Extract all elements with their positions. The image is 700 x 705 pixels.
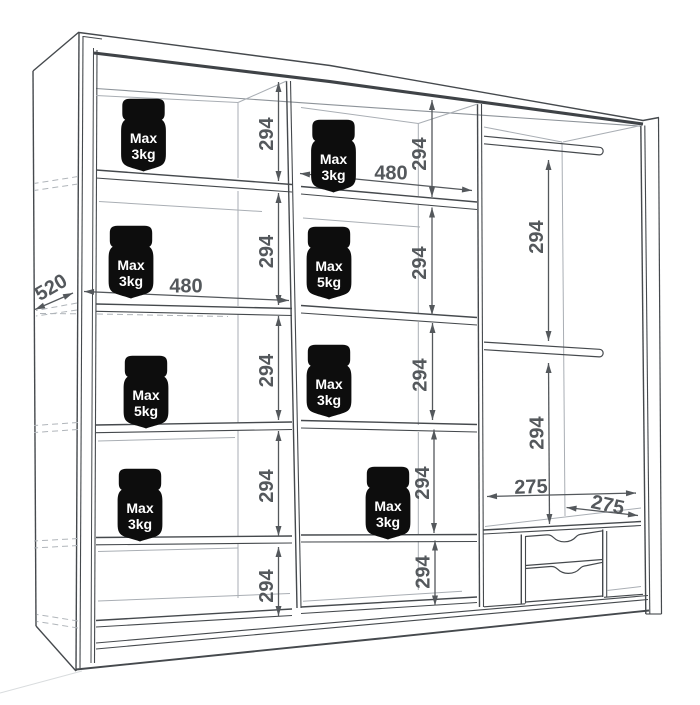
svg-text:3kg: 3kg xyxy=(119,273,143,289)
svg-text:480: 480 xyxy=(169,275,202,297)
svg-text:3kg: 3kg xyxy=(131,146,155,162)
svg-text:Max: Max xyxy=(130,130,157,146)
svg-text:294: 294 xyxy=(526,415,548,449)
svg-text:294: 294 xyxy=(256,234,278,268)
svg-text:294: 294 xyxy=(409,136,431,170)
svg-text:5kg: 5kg xyxy=(134,403,158,419)
svg-text:294: 294 xyxy=(409,357,431,391)
svg-text:294: 294 xyxy=(412,465,434,499)
svg-text:Max: Max xyxy=(126,500,153,516)
svg-text:294: 294 xyxy=(409,245,431,279)
svg-text:275: 275 xyxy=(514,476,548,499)
svg-text:Max: Max xyxy=(315,258,342,274)
svg-text:294: 294 xyxy=(412,554,434,588)
svg-text:3kg: 3kg xyxy=(128,516,152,532)
svg-text:294: 294 xyxy=(256,468,278,502)
svg-text:Max: Max xyxy=(132,387,159,403)
svg-text:480: 480 xyxy=(374,162,407,184)
svg-text:Max: Max xyxy=(315,376,342,392)
svg-text:294: 294 xyxy=(526,219,548,253)
svg-text:3kg: 3kg xyxy=(321,167,345,183)
svg-text:294: 294 xyxy=(256,568,278,602)
svg-text:Max: Max xyxy=(320,151,347,167)
svg-text:3kg: 3kg xyxy=(317,392,341,408)
svg-text:294: 294 xyxy=(256,353,278,387)
svg-text:Max: Max xyxy=(117,257,144,273)
svg-text:3kg: 3kg xyxy=(376,514,400,530)
svg-text:Max: Max xyxy=(374,498,401,514)
svg-text:5kg: 5kg xyxy=(317,274,341,290)
svg-text:294: 294 xyxy=(256,116,278,150)
